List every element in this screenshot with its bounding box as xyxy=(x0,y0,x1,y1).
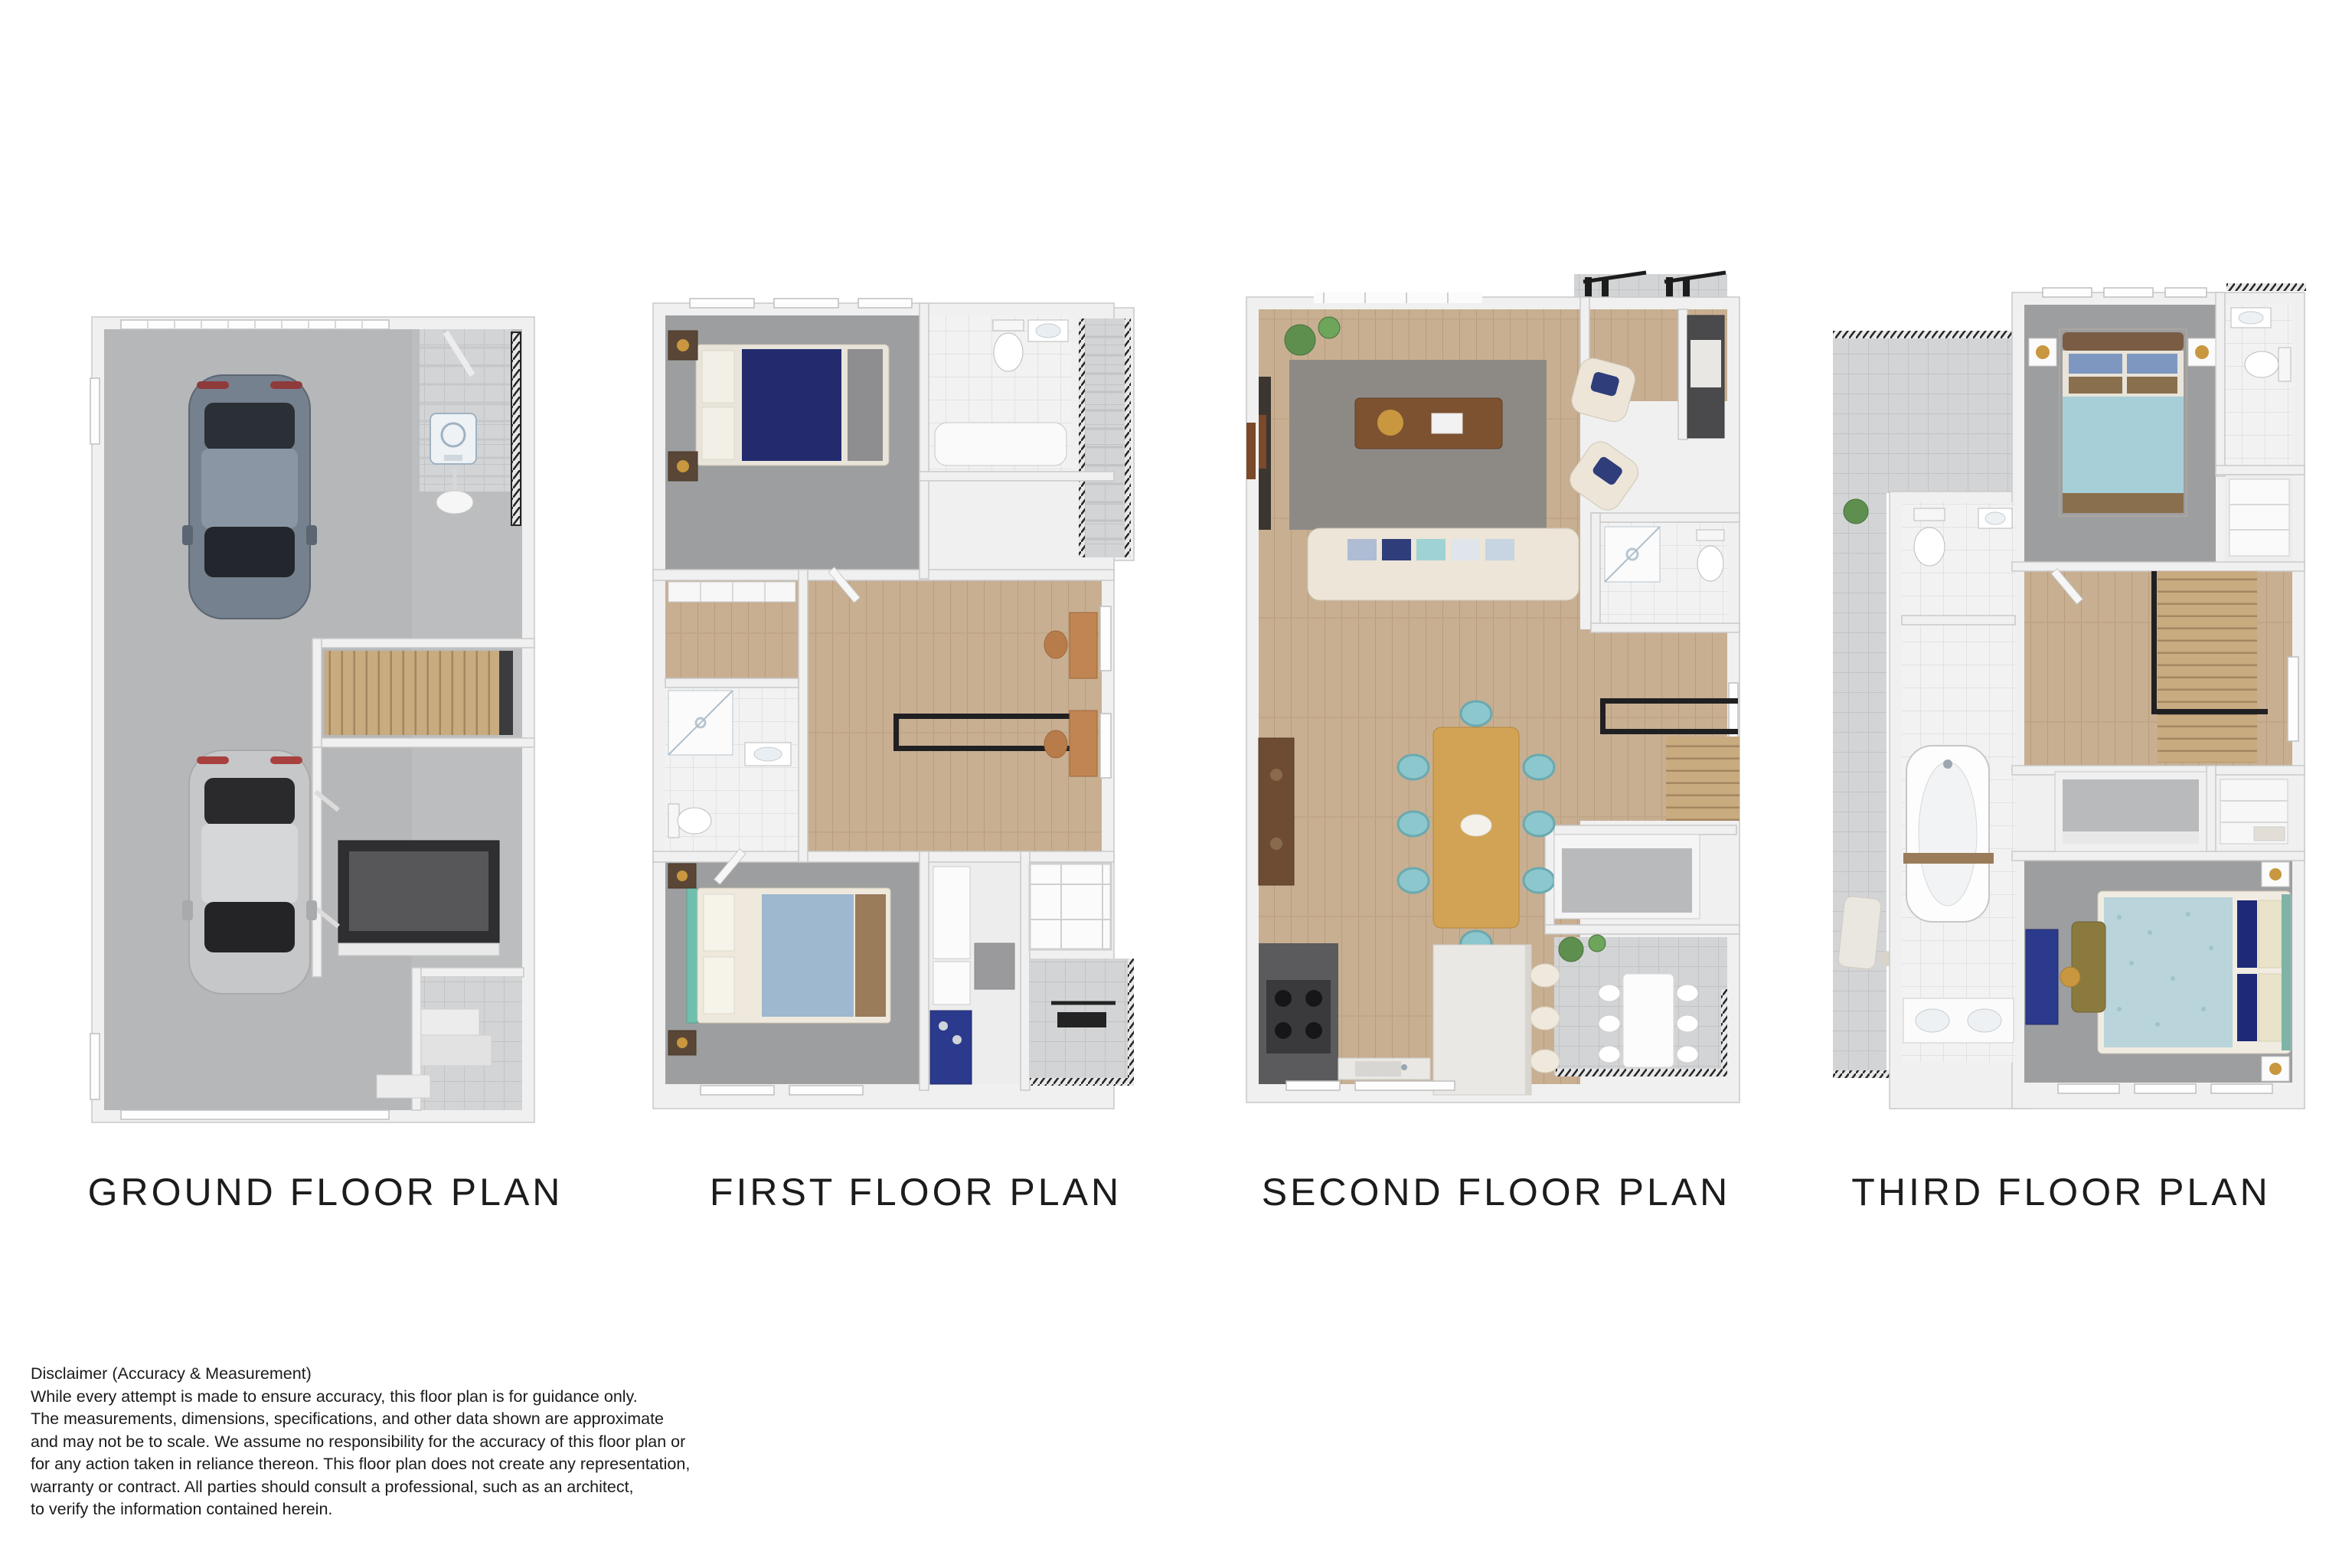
wood-staircase-icon xyxy=(325,651,513,735)
second-floor-plan xyxy=(1240,269,1749,1135)
staircase-icon xyxy=(2158,571,2257,763)
skylight xyxy=(1314,292,1482,303)
plant-icon xyxy=(1559,937,1583,962)
threshold-step xyxy=(377,1075,430,1098)
disclaimer-line: and may not be to scale. We assume no re… xyxy=(31,1431,781,1454)
bathroom2-floor xyxy=(2225,305,2292,465)
wall xyxy=(312,747,322,977)
wall xyxy=(1591,513,1739,522)
first-floor-title: FIRST FLOOR PLAN xyxy=(625,1170,1207,1214)
plant-icon xyxy=(1589,935,1606,952)
wall xyxy=(1591,623,1739,632)
sideboard-icon xyxy=(1259,738,1294,885)
wall xyxy=(2207,766,2216,851)
linen-closet-icon xyxy=(2055,772,2207,851)
stair-annex-steps xyxy=(1079,318,1131,557)
wall xyxy=(1678,309,1687,439)
balcony-floor xyxy=(1833,338,2014,493)
water-heater-icon xyxy=(430,413,476,514)
wall xyxy=(653,851,1114,862)
closet-shelf-icon xyxy=(668,582,795,602)
wall xyxy=(920,851,929,1090)
stool-icon xyxy=(1530,964,1560,987)
storage-shelf-icon xyxy=(338,841,499,955)
bench-icon xyxy=(2072,922,2105,1012)
stair-railing xyxy=(1125,318,1131,557)
balcony-railing xyxy=(1721,989,1727,1075)
toilet-icon xyxy=(1914,508,1945,566)
wall xyxy=(312,738,534,747)
third-floor-plan-drawing xyxy=(1828,274,2311,1135)
stair-railing xyxy=(1079,318,1085,557)
sink-icon xyxy=(1028,320,1068,341)
ground-floor-plan-drawing xyxy=(86,305,541,1135)
car-icon xyxy=(182,375,317,619)
plant-icon xyxy=(1844,499,1868,524)
third-floor-plan xyxy=(1828,274,2311,1135)
bed-icon xyxy=(2098,891,2291,1053)
sofa-icon xyxy=(1308,528,1579,600)
balcony-railing xyxy=(1128,959,1134,1086)
disclaimer-line: The measurements, dimensions, specificat… xyxy=(31,1408,781,1431)
desk-icon xyxy=(2254,827,2285,841)
disclaimer-heading: Disclaimer (Accuracy & Measurement) xyxy=(31,1363,781,1386)
balcony-railing xyxy=(1030,1078,1134,1086)
balcony-railing xyxy=(1556,1069,1727,1076)
wall xyxy=(920,472,1114,481)
sink-icon xyxy=(1978,508,2012,528)
balcony-railing xyxy=(2226,283,2306,291)
outdoor-table-icon xyxy=(1623,974,1674,1067)
wall xyxy=(653,570,1114,580)
coffee-table-icon xyxy=(1355,398,1502,449)
bed-icon xyxy=(696,345,889,465)
car-icon xyxy=(182,750,317,994)
stool-icon xyxy=(1530,1007,1560,1030)
disclaimer-line: for any action taken in reliance thereon… xyxy=(31,1453,781,1476)
window xyxy=(90,1034,100,1099)
stool-icon xyxy=(1530,1050,1560,1073)
wall xyxy=(1591,513,1600,632)
bed-icon xyxy=(687,888,890,1023)
shower-icon xyxy=(1605,527,1660,582)
disclaimer-line: warranty or contract. All parties should… xyxy=(31,1476,781,1499)
wall xyxy=(312,639,534,648)
disclaimer: Disclaimer (Accuracy & Measurement) Whil… xyxy=(31,1363,781,1521)
gym-bench-icon xyxy=(1057,1012,1106,1027)
third-floor-title: THIRD FLOOR PLAN xyxy=(1770,1170,2352,1214)
vanity-icon xyxy=(1903,998,2014,1043)
wall xyxy=(920,303,929,579)
skylight xyxy=(1030,864,1111,949)
shower-icon xyxy=(668,691,733,755)
cabinet-icon xyxy=(930,1011,972,1084)
closet-shelf-icon xyxy=(2229,479,2289,556)
wall xyxy=(1021,851,1030,1090)
disclaimer-line: While every attempt is made to ensure ac… xyxy=(31,1386,781,1409)
ground-floor-plan xyxy=(86,305,541,1135)
wall xyxy=(2012,851,2305,861)
wall xyxy=(2216,292,2225,476)
first-floor-plan-drawing xyxy=(647,285,1141,1135)
balcony xyxy=(1030,959,1134,1086)
second-floor-plan-drawing xyxy=(1240,269,1749,1135)
dining-table-icon xyxy=(1433,727,1519,928)
stove-icon xyxy=(1259,943,1338,1084)
wall xyxy=(1545,825,1736,835)
disclaimer-line: to verify the information contained here… xyxy=(31,1498,781,1521)
second-floor-title: SECOND FLOOR PLAN xyxy=(1205,1170,1787,1214)
window xyxy=(90,378,100,444)
pantry-cabinet-icon xyxy=(1687,315,1724,438)
wall xyxy=(1902,616,2015,625)
staircase-icon xyxy=(1666,737,1739,821)
wall xyxy=(312,639,322,747)
wall xyxy=(665,678,799,688)
ground-floor-title: GROUND FLOOR PLAN xyxy=(34,1170,616,1214)
kitchen-counter-icon xyxy=(1338,1058,1430,1080)
wall xyxy=(2216,465,2305,475)
storage-cabinet-icon xyxy=(1554,835,1700,919)
tv-cabinet-icon xyxy=(1259,377,1271,530)
stair-railing xyxy=(511,332,521,525)
first-floor-plan xyxy=(647,285,1141,1135)
wall xyxy=(412,968,524,977)
bathtub-icon xyxy=(1903,746,1994,922)
sink-icon xyxy=(2231,308,2271,328)
bathtub-icon xyxy=(935,423,1067,465)
toilet-icon xyxy=(1697,530,1724,581)
wall xyxy=(1545,925,1739,934)
balcony-railing xyxy=(1833,331,2015,338)
wall xyxy=(799,570,808,862)
entry-door-icon xyxy=(1246,423,1256,479)
gym-balcony xyxy=(1574,273,1727,300)
bed-icon xyxy=(2060,329,2187,516)
kitchen-island-icon xyxy=(1433,945,1560,1095)
balcony-floor xyxy=(1833,493,1886,1070)
toilet-icon xyxy=(993,320,1024,371)
sink-icon xyxy=(745,743,791,766)
closet-shelf-icon xyxy=(2220,779,2288,844)
tub-caddy-icon xyxy=(1903,853,1994,864)
